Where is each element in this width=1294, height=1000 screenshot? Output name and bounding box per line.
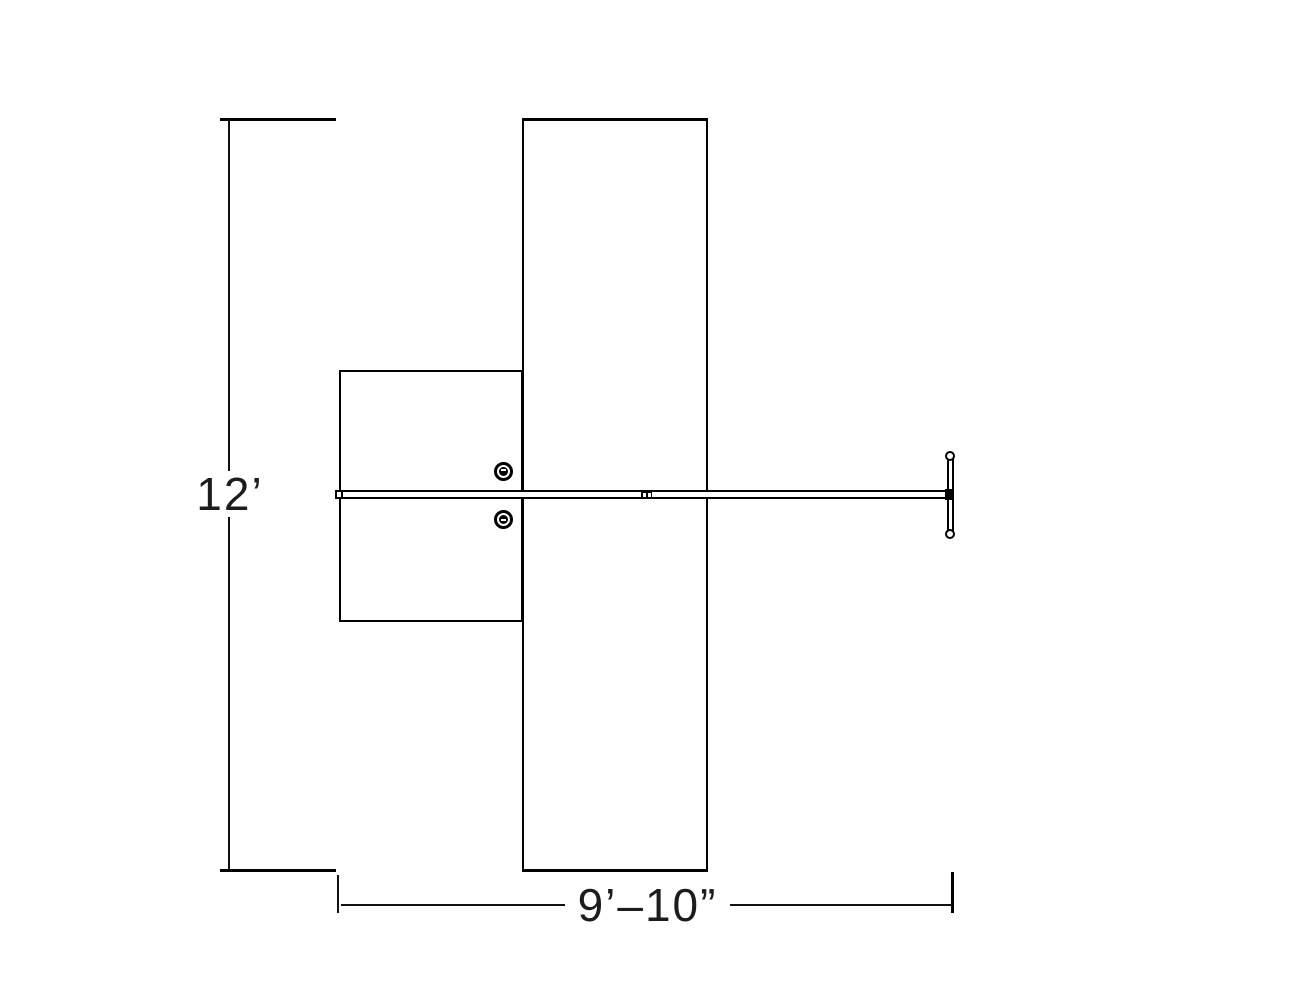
backboard-top-cap bbox=[945, 451, 955, 461]
vertical-dimension-line-lower bbox=[228, 516, 230, 870]
left-extension-tick bbox=[337, 875, 339, 913]
vertical-dimension-label: 12’ bbox=[188, 471, 272, 517]
coupling-hole bbox=[643, 493, 646, 497]
pole-coupling bbox=[641, 490, 652, 499]
right-extension-tick bbox=[951, 872, 954, 913]
horizontal-dimension-line-right bbox=[712, 904, 952, 906]
pole-backboard-junction bbox=[945, 489, 954, 500]
bolt-circle-lower bbox=[494, 510, 513, 529]
pole-left-end-cap bbox=[335, 490, 343, 499]
bolt-slot bbox=[501, 519, 506, 522]
bolt-slot bbox=[501, 469, 506, 472]
backboard-bottom-cap bbox=[945, 529, 955, 539]
horizontal-dimension-label: 9’–10” bbox=[565, 882, 730, 928]
bottom-extension-line bbox=[220, 869, 336, 872]
horizontal-dimension-line-left bbox=[341, 904, 582, 906]
top-extension-line bbox=[220, 118, 336, 121]
vertical-dimension-line-upper bbox=[228, 119, 230, 477]
coupling-hole bbox=[648, 493, 651, 497]
drawing-canvas: 12’ 9’–10” bbox=[0, 0, 1294, 1000]
bolt-circle-upper bbox=[494, 462, 513, 481]
